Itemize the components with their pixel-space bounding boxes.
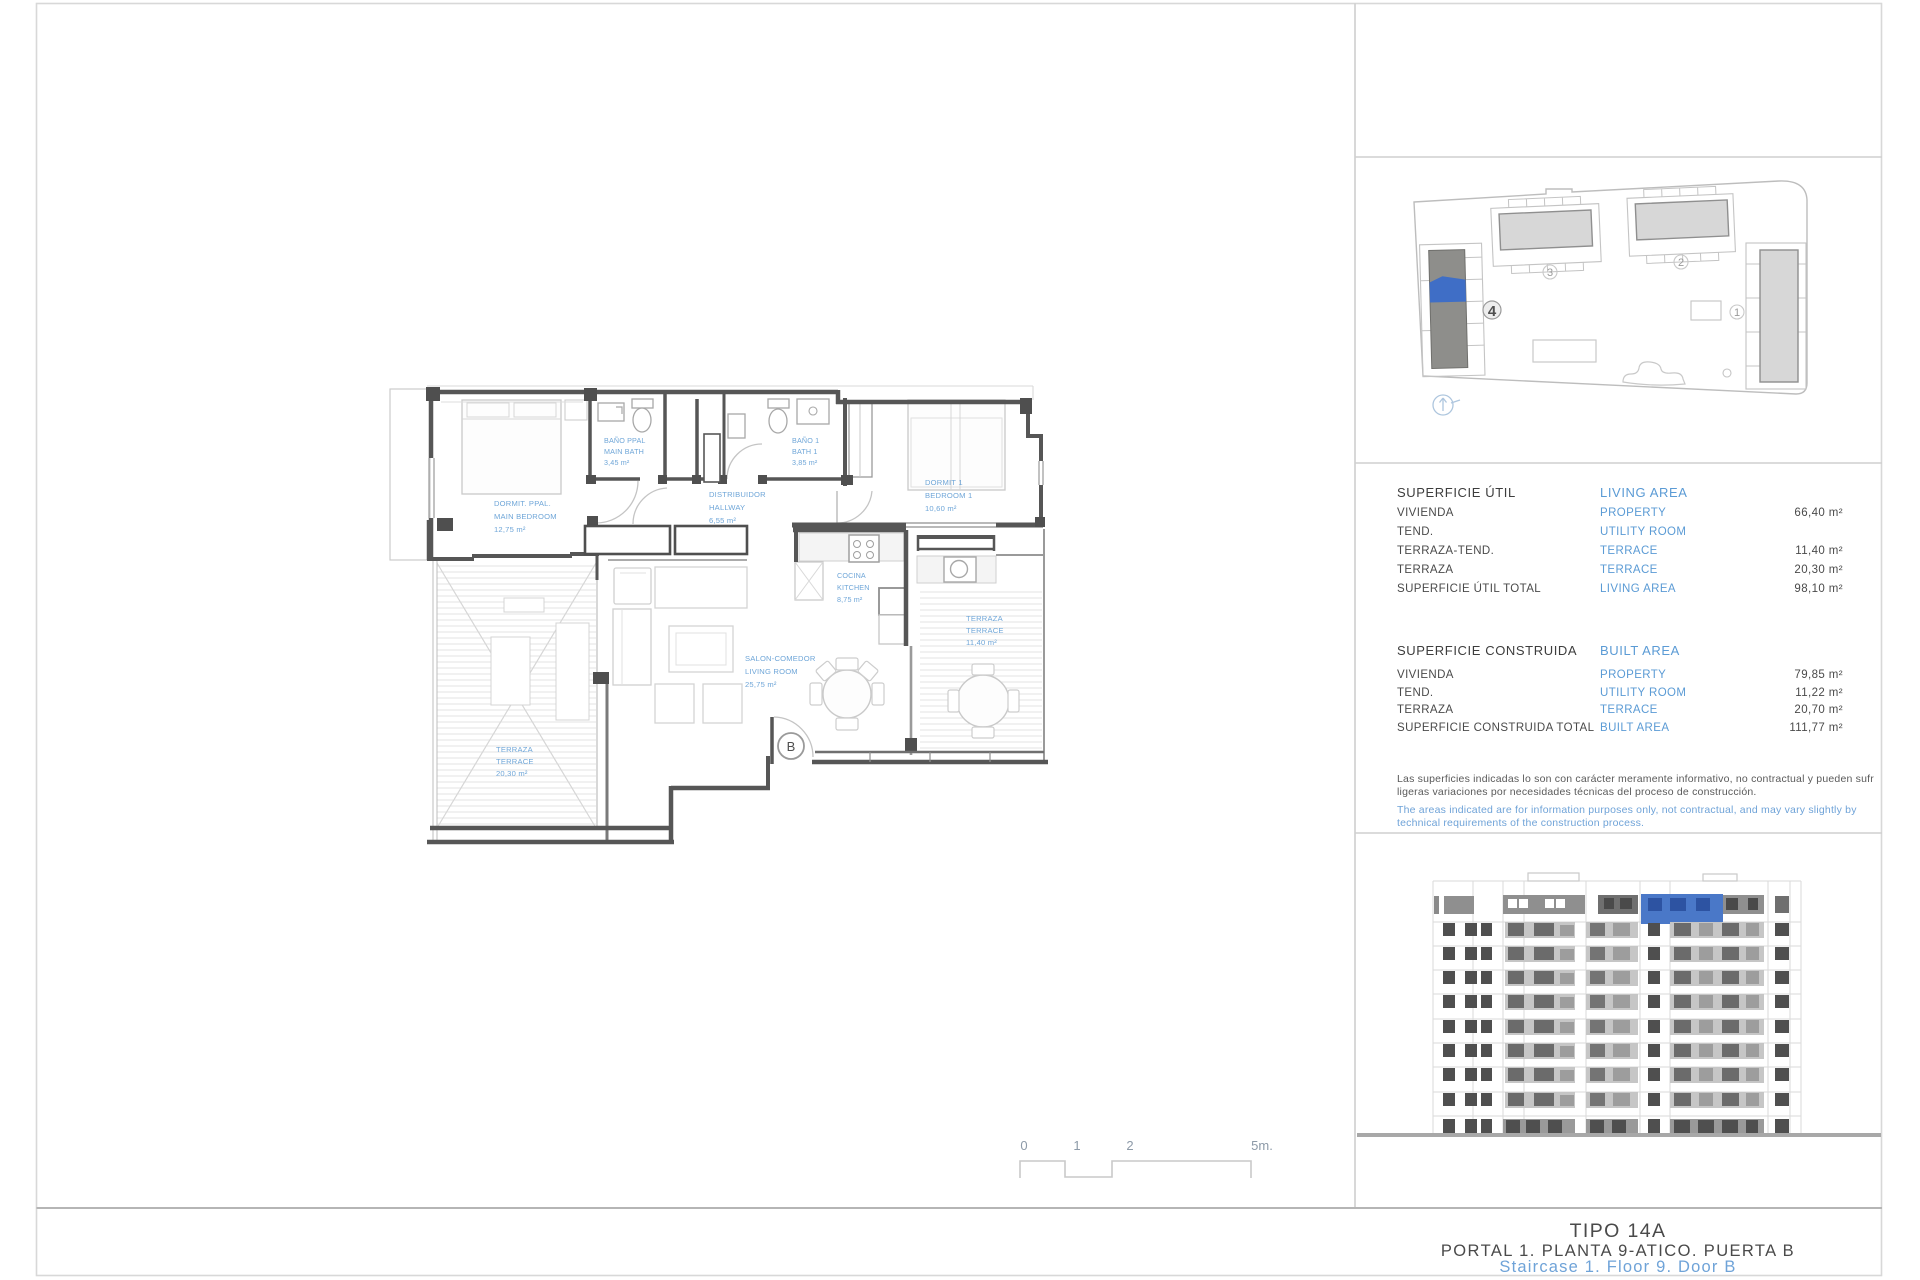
- svg-text:COCINA: COCINA: [837, 571, 866, 580]
- svg-text:0: 0: [1020, 1138, 1027, 1153]
- svg-text:LIVING AREA: LIVING AREA: [1600, 485, 1688, 500]
- svg-text:LIVING ROOM: LIVING ROOM: [745, 667, 798, 676]
- svg-text:TEND.: TEND.: [1397, 687, 1434, 699]
- svg-text:25,75 m²: 25,75 m²: [745, 680, 777, 689]
- svg-text:VIVIENDA: VIVIENDA: [1397, 669, 1454, 681]
- svg-text:LIVING AREA: LIVING AREA: [1600, 583, 1676, 595]
- svg-text:20,70 m²: 20,70 m²: [1794, 704, 1843, 716]
- svg-text:66,40 m²: 66,40 m²: [1794, 507, 1843, 519]
- svg-text:1: 1: [1734, 307, 1740, 319]
- svg-text:11,40 m²: 11,40 m²: [1795, 545, 1843, 557]
- svg-text:TIPO 14A: TIPO 14A: [1570, 1220, 1667, 1242]
- svg-text:BUILT AREA: BUILT AREA: [1600, 722, 1669, 734]
- svg-text:2: 2: [1126, 1138, 1133, 1153]
- svg-text:DORMIT. PPAL.: DORMIT. PPAL.: [494, 499, 551, 508]
- svg-text:79,85 m²: 79,85 m²: [1794, 669, 1843, 681]
- svg-text:20,30 m²: 20,30 m²: [1794, 564, 1843, 576]
- svg-text:TERRAZA: TERRAZA: [496, 745, 534, 754]
- svg-text:The areas indicated are for in: The areas indicated are for information …: [1397, 804, 1857, 816]
- svg-text:20,30 m²: 20,30 m²: [496, 769, 528, 778]
- svg-text:TEND.: TEND.: [1397, 526, 1434, 538]
- svg-text:3: 3: [1547, 267, 1553, 279]
- svg-text:2: 2: [1678, 257, 1684, 269]
- svg-text:MAIN BEDROOM: MAIN BEDROOM: [494, 512, 557, 521]
- svg-text:TERRAZA: TERRAZA: [1397, 564, 1453, 576]
- svg-text:UTILITY ROOM: UTILITY ROOM: [1600, 687, 1686, 699]
- svg-text:KITCHEN: KITCHEN: [837, 583, 870, 592]
- svg-text:SUPERFICIE ÚTIL TOTAL: SUPERFICIE ÚTIL TOTAL: [1397, 582, 1541, 595]
- svg-text:B: B: [787, 739, 796, 754]
- svg-text:Staircase 1. Floor 9. Door B: Staircase 1. Floor 9. Door B: [1499, 1258, 1736, 1276]
- svg-text:TERRACE: TERRACE: [1600, 564, 1658, 576]
- svg-text:98,10 m²: 98,10 m²: [1794, 583, 1843, 595]
- svg-text:SALON-COMEDOR: SALON-COMEDOR: [745, 654, 816, 663]
- svg-text:UTILITY ROOM: UTILITY ROOM: [1600, 526, 1686, 538]
- svg-text:TERRACE: TERRACE: [1600, 545, 1658, 557]
- svg-text:Las superficies indicadas lo s: Las superficies indicadas lo son con car…: [1397, 773, 1874, 785]
- svg-text:11,22 m²: 11,22 m²: [1795, 687, 1843, 699]
- svg-text:BUILT AREA: BUILT AREA: [1600, 643, 1680, 658]
- svg-text:PROPERTY: PROPERTY: [1600, 507, 1666, 519]
- svg-text:technical requirements of the: technical requirements of the constructi…: [1397, 817, 1644, 829]
- svg-text:SUPERFICIE ÚTIL: SUPERFICIE ÚTIL: [1397, 485, 1516, 500]
- svg-text:10,60 m²: 10,60 m²: [925, 504, 957, 513]
- svg-text:TERRAZA-TEND.: TERRAZA-TEND.: [1397, 545, 1494, 557]
- svg-text:BAÑO PPAL: BAÑO PPAL: [604, 436, 646, 445]
- svg-text:TERRACE: TERRACE: [1600, 704, 1658, 716]
- svg-text:MAIN BATH: MAIN BATH: [604, 447, 644, 456]
- svg-text:DORMIT 1: DORMIT 1: [925, 478, 963, 487]
- svg-text:11,40 m²: 11,40 m²: [966, 638, 997, 647]
- svg-text:DISTRIBUIDOR: DISTRIBUIDOR: [709, 490, 766, 499]
- svg-text:111,77 m²: 111,77 m²: [1789, 722, 1843, 734]
- svg-text:TERRACE: TERRACE: [496, 757, 534, 766]
- svg-text:BAÑO 1: BAÑO 1: [792, 436, 819, 445]
- svg-text:HALLWAY: HALLWAY: [709, 503, 745, 512]
- svg-text:6,55 m²: 6,55 m²: [709, 516, 736, 525]
- svg-text:4: 4: [1488, 303, 1497, 320]
- svg-text:BEDROOM 1: BEDROOM 1: [925, 491, 972, 500]
- svg-text:TERRAZA: TERRAZA: [1397, 704, 1453, 716]
- svg-text:ligeras variaciones por necesi: ligeras variaciones por necesidades técn…: [1397, 786, 1757, 798]
- svg-text:SUPERFICIE CONSTRUIDA: SUPERFICIE CONSTRUIDA: [1397, 643, 1577, 658]
- svg-text:8,75 m²: 8,75 m²: [837, 595, 863, 604]
- svg-text:PROPERTY: PROPERTY: [1600, 669, 1666, 681]
- svg-text:TERRAZA: TERRAZA: [966, 614, 1004, 623]
- svg-text:TERRACE: TERRACE: [966, 626, 1004, 635]
- svg-text:3,45 m²: 3,45 m²: [604, 458, 630, 467]
- svg-text:12,75 m²: 12,75 m²: [494, 525, 526, 534]
- svg-text:3,85 m²: 3,85 m²: [792, 458, 818, 467]
- svg-text:1: 1: [1073, 1138, 1080, 1153]
- svg-text:SUPERFICIE CONSTRUIDA TOTAL: SUPERFICIE CONSTRUIDA TOTAL: [1397, 722, 1595, 734]
- svg-text:BATH 1: BATH 1: [792, 447, 818, 456]
- svg-text:5m.: 5m.: [1251, 1138, 1273, 1153]
- svg-text:VIVIENDA: VIVIENDA: [1397, 507, 1454, 519]
